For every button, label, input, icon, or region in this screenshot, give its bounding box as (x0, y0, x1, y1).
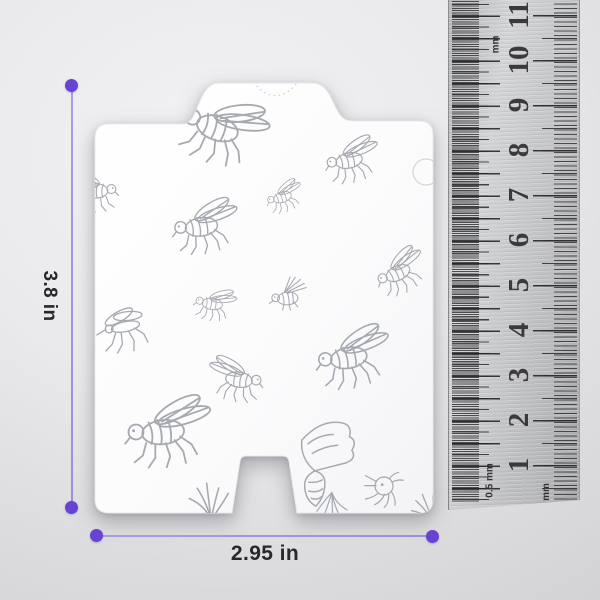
ruler-number: 5 (504, 265, 534, 305)
ruler-number: 9 (504, 85, 534, 125)
height-dimension-label: 3.8 in (38, 264, 60, 328)
steel-ruler: 1234567891011 mm 0.5 mm mm (448, 0, 580, 510)
ruler-ticks-right-medium (542, 0, 577, 499)
ruler-number: 10 (504, 40, 534, 80)
width-dimension-label: 2.95 in (200, 542, 330, 566)
dimension-endpoint-dot (90, 529, 103, 542)
ruler-ticks-right-fine (554, 0, 577, 500)
ruler-ticks-left-fine (452, 0, 479, 502)
trap-card-body (95, 83, 433, 513)
ruler-ticks-left-medium (452, 0, 489, 501)
ruler-number: 8 (504, 130, 534, 170)
ruler-number: 3 (504, 355, 534, 395)
height-dimension-line (71, 91, 73, 503)
dimension-endpoint-dot (65, 79, 78, 92)
ruler-number: 2 (504, 400, 534, 440)
ruler-number: 7 (504, 175, 534, 215)
ruler-number: 6 (504, 220, 534, 260)
ruler-number: 4 (504, 310, 534, 350)
ruler-ticks-left-long (452, 0, 500, 501)
width-dimension-line (103, 535, 427, 537)
product-dimension-illustration: 1234567891011 mm 0.5 mm mm 3.8 in 2.95 i… (0, 0, 600, 600)
dimension-endpoint-dot (426, 530, 439, 543)
ruler-unit-label: mm (490, 30, 503, 60)
ruler-ticks-right-long (533, 15, 577, 499)
dimension-endpoint-dot (65, 501, 78, 514)
ruler-number: 11 (504, 0, 534, 35)
ruler-unit-label: mm (541, 478, 553, 506)
ruler-unit-label: 0.5 mm (484, 458, 497, 504)
ruler-number: 1 (504, 445, 534, 485)
